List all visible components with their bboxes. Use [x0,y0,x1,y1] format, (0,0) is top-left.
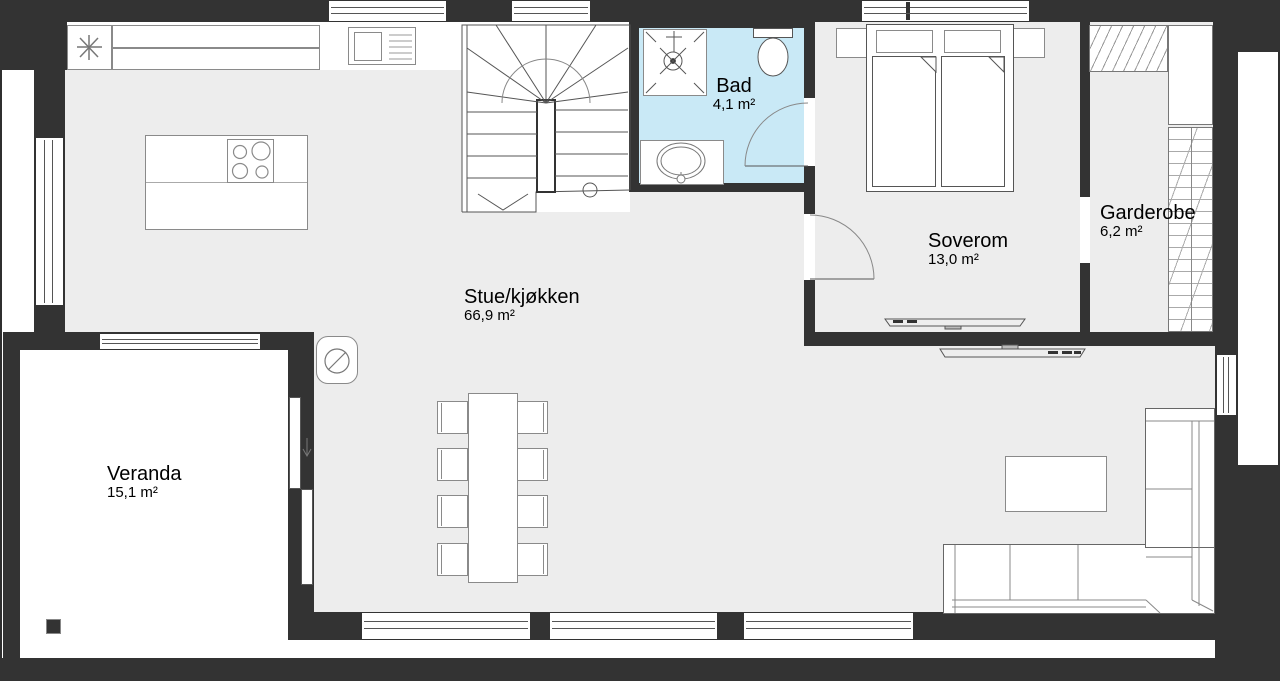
plan-symbols [0,0,1280,681]
stair-winders [467,25,628,103]
stairs-symbol [462,25,630,212]
room-name-stue: Stue/kjøkken [464,286,580,308]
room-name-bad: Bad [702,75,766,97]
room-label-veranda: Veranda 15,1 m² [107,463,182,502]
room-label-garderobe: Garderobe 6,2 m² [1100,202,1196,241]
toilet-icon [758,38,788,76]
sink-icon [657,143,705,183]
room-area-veranda: 15,1 m² [107,485,182,502]
stair-direction-arrow [478,194,528,210]
stair-treads-left [467,112,537,178]
room-label-bad: Bad 4,1 m² [702,75,766,114]
room-area-soverom: 13,0 m² [928,252,1008,269]
room-name-soverom: Soverom [928,230,1008,252]
door-bedroom [810,215,874,279]
wood-stove-icon [325,349,349,373]
sink-drainer-lines [389,35,412,59]
room-label-stue: Stue/kjøkken 66,9 m² [464,286,580,325]
room-area-bad: 4,1 m² [702,97,766,114]
room-area-garderobe: 6,2 m² [1100,224,1196,241]
ceiling-light-icon [77,35,102,60]
bed-fold-corners [921,57,1004,72]
room-name-veranda: Veranda [107,463,182,485]
room-label-soverom: Soverom 13,0 m² [928,230,1008,269]
sliding-door-arrow [303,438,311,456]
sofa-lines [952,421,1214,613]
floor-plan-canvas: Stue/kjøkken 66,9 m² Bad 4,1 m² Soverom … [0,0,1280,681]
tv-icon-living [940,345,1085,357]
cooktop-burners [233,142,271,179]
stair-newel [583,183,597,197]
room-name-garderobe: Garderobe [1100,202,1196,224]
stair-treads-right [555,110,628,176]
tv-icon-bedroom [885,319,1025,329]
room-area-stue: 66,9 m² [464,308,580,325]
shower-head-icon [646,31,704,93]
